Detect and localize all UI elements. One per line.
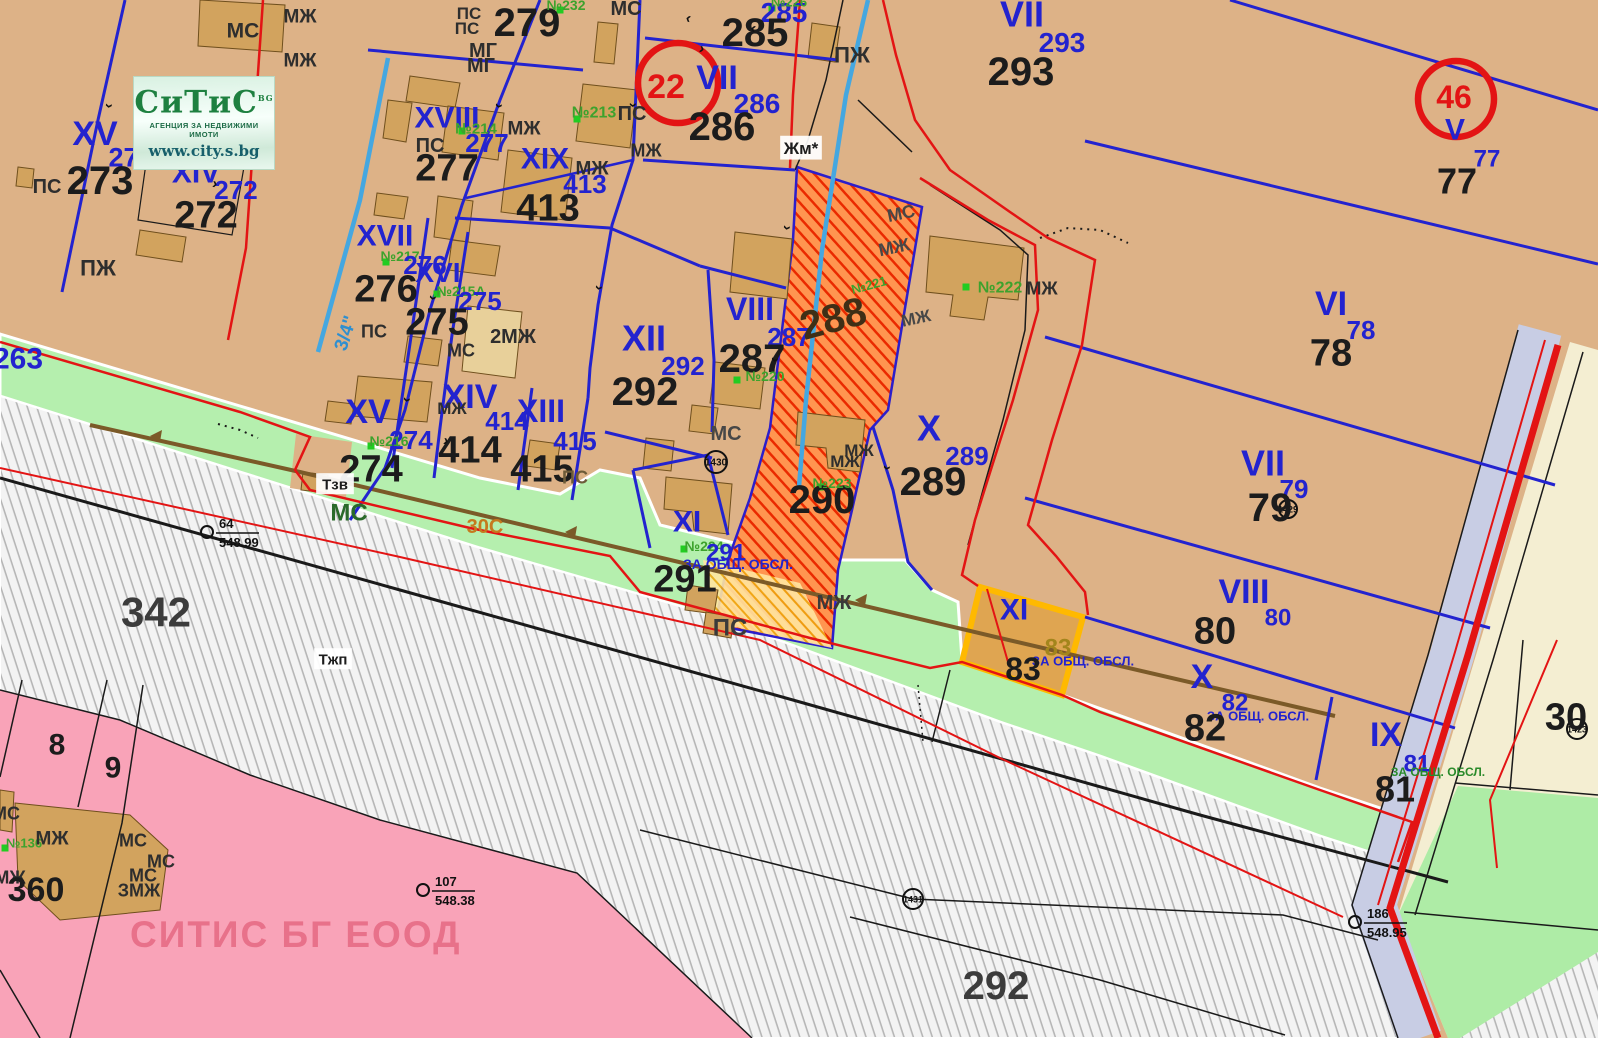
map-label: 9 [105, 752, 122, 785]
map-label: › [625, 102, 642, 108]
map-label: VII [696, 59, 738, 97]
benchmark-number: 107 [435, 874, 457, 889]
map-label: ЗМЖ [118, 880, 161, 900]
red-circle-number: 22 [647, 68, 685, 106]
map-label: ЗА ОБЩ. ОБСЛ. [1032, 654, 1134, 669]
map-label: №213 [572, 105, 617, 122]
map-label: VI [1315, 285, 1347, 323]
map-label: 413 [516, 187, 579, 229]
map-label: X [917, 408, 941, 449]
map-label: МЖ [830, 452, 860, 471]
map-label: 275 [405, 301, 468, 343]
map-label: 80 [1265, 604, 1292, 631]
map-label: 80 [1194, 610, 1236, 652]
map-label: 263 [0, 343, 43, 376]
map-label: 342 [121, 589, 191, 636]
map-label: МЖ [817, 592, 853, 614]
map-label: 78 [1310, 332, 1352, 374]
map-label: XIX [521, 143, 569, 176]
map-label: 286 [689, 105, 756, 149]
benchmark-elevation: 548.99 [219, 535, 259, 550]
map-label: 83 [1005, 651, 1041, 687]
map-label: VII [1241, 443, 1285, 484]
map-label: 291 [653, 558, 716, 600]
map-label: №232 [547, 0, 586, 13]
map-label: МС [610, 0, 641, 20]
map-label: 292 [612, 370, 679, 414]
map-label: МЖ [1026, 278, 1058, 298]
map-label: VIII [1218, 573, 1269, 611]
map-label: №220 [746, 368, 785, 384]
map-label: МГ [467, 55, 495, 77]
map-label: XI [1000, 594, 1028, 627]
map-label: МС [330, 499, 367, 526]
map-label: МС [227, 19, 260, 42]
map-label: ПС [562, 467, 588, 487]
survey-circle-label: 1431 [903, 895, 923, 905]
map-label: X [1191, 658, 1214, 696]
map-label: 8 [49, 729, 66, 762]
map-label: ПС [33, 176, 62, 198]
map-label: VII [1000, 0, 1044, 35]
map-label: XII [622, 318, 666, 359]
benchmark-number: 64 [219, 516, 234, 531]
map-label: 277 [415, 147, 478, 189]
map-label: 293 [988, 50, 1055, 94]
building-marker [963, 284, 970, 291]
map-label: IX [1370, 716, 1402, 754]
map-label: МС [0, 803, 20, 823]
map-label: 292 [963, 964, 1030, 1008]
map-label: V [1445, 114, 1465, 147]
map-label: ПЖ [834, 43, 870, 68]
map-label: №216 [370, 433, 409, 449]
map-label: ПЖ [80, 256, 116, 281]
map-label: МЖ [508, 119, 542, 140]
map-label: 77 [1437, 161, 1477, 202]
map-label: МС [119, 830, 147, 850]
map-label: XV [345, 393, 391, 431]
map-label: МЖ [437, 399, 467, 418]
map-label: МС [447, 340, 475, 360]
map-label: Тжп [319, 651, 348, 668]
benchmark-number: 186 [1367, 906, 1389, 921]
map-label: №223 [813, 475, 852, 491]
benchmark-elevation: 548.38 [435, 893, 475, 908]
map-label: МЖ [36, 829, 70, 850]
map-label: 360 [8, 871, 65, 909]
map-label: 289 [900, 460, 967, 504]
company-watermark: СИТИС БГ ЕООД [130, 914, 461, 955]
map-label: ПС [713, 614, 748, 641]
map-label: XI [673, 506, 701, 539]
survey-circle-label: 1430 [705, 458, 728, 469]
red-circle-number: 46 [1436, 79, 1472, 115]
map-label: №226 [771, 0, 807, 10]
agency-logo-suffix: BG [258, 93, 274, 103]
map-label: 79 [1248, 486, 1293, 530]
agency-logo-tagline: АГЕНЦИЯ ЗА НЕДВИЖИМИ ИМОТИ [134, 121, 274, 139]
map-label: МЖ [630, 140, 662, 160]
map-label: 30 [1545, 696, 1587, 738]
benchmark-elevation: 548.95 [1367, 925, 1407, 940]
agency-logo: СиТиСBG АГЕНЦИЯ ЗА НЕДВИЖИМИ ИМОТИ www.c… [133, 76, 275, 170]
map-label: Жм* [783, 139, 819, 158]
map-label: МС [710, 423, 741, 445]
map-label: 273 [67, 159, 134, 203]
map-label: ПС [361, 321, 387, 341]
map-label: Тзв [322, 476, 348, 493]
map-label: МЖ [284, 7, 318, 28]
agency-logo-url: www.city.s.bg [134, 142, 274, 160]
agency-logo-brand: СиТиСBG [134, 81, 274, 119]
cadastral-map: 2246 1430143114231429 64548.99107548.381… [0, 0, 1598, 1038]
map-label: №222 [978, 280, 1023, 297]
map-label: ЗА ОБЩ. ОБСЛ. [1391, 765, 1485, 779]
map-label: ПС [455, 19, 480, 38]
map-label: 77 [1474, 145, 1501, 172]
map-label: 2МЖ [490, 326, 537, 348]
map-label: 82 [1184, 707, 1226, 749]
map-label: МЖ [284, 51, 318, 72]
map-label: 30С [467, 516, 504, 538]
map-label: 272 [174, 194, 237, 236]
